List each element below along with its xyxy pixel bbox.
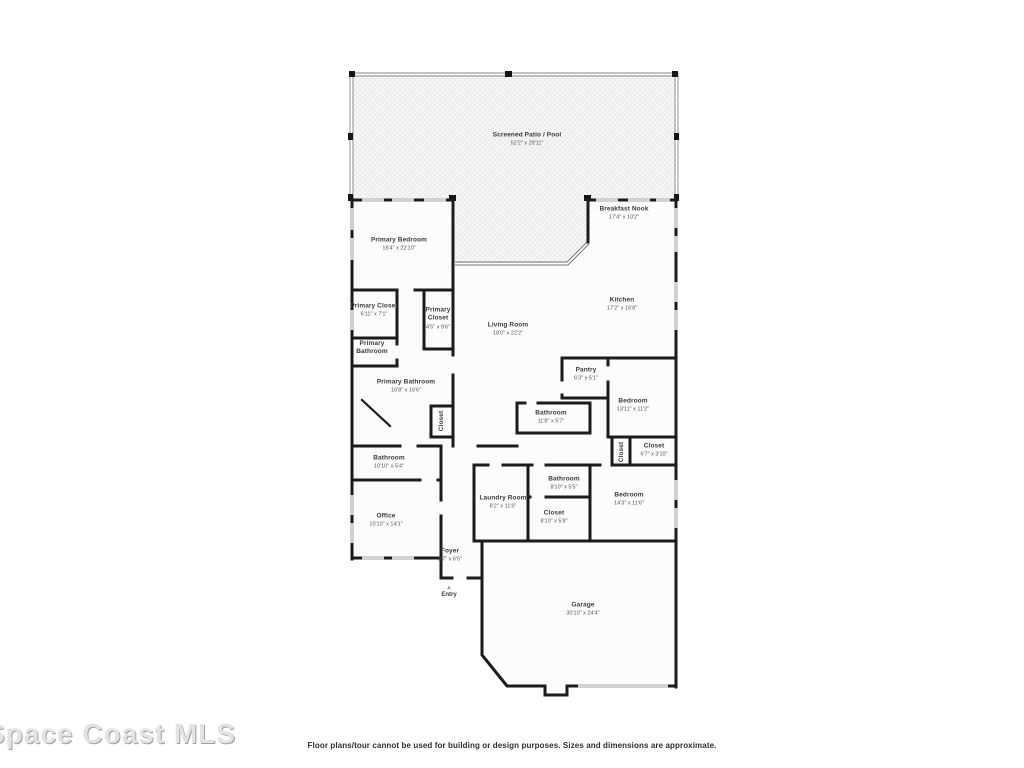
- disclaimer-text: Floor plans/tour cannot be used for buil…: [0, 741, 1024, 750]
- entry-marker: ▲ Entry: [441, 585, 456, 598]
- garage-fill: [482, 541, 676, 695]
- floorplan-drawing: [0, 0, 1024, 768]
- entry-arrow-icon: ▲: [441, 585, 456, 591]
- floorplan-page: Screened Patio / Pool 52'2" x 29'11" Pri…: [0, 0, 1024, 768]
- entry-label: Entry: [441, 592, 456, 598]
